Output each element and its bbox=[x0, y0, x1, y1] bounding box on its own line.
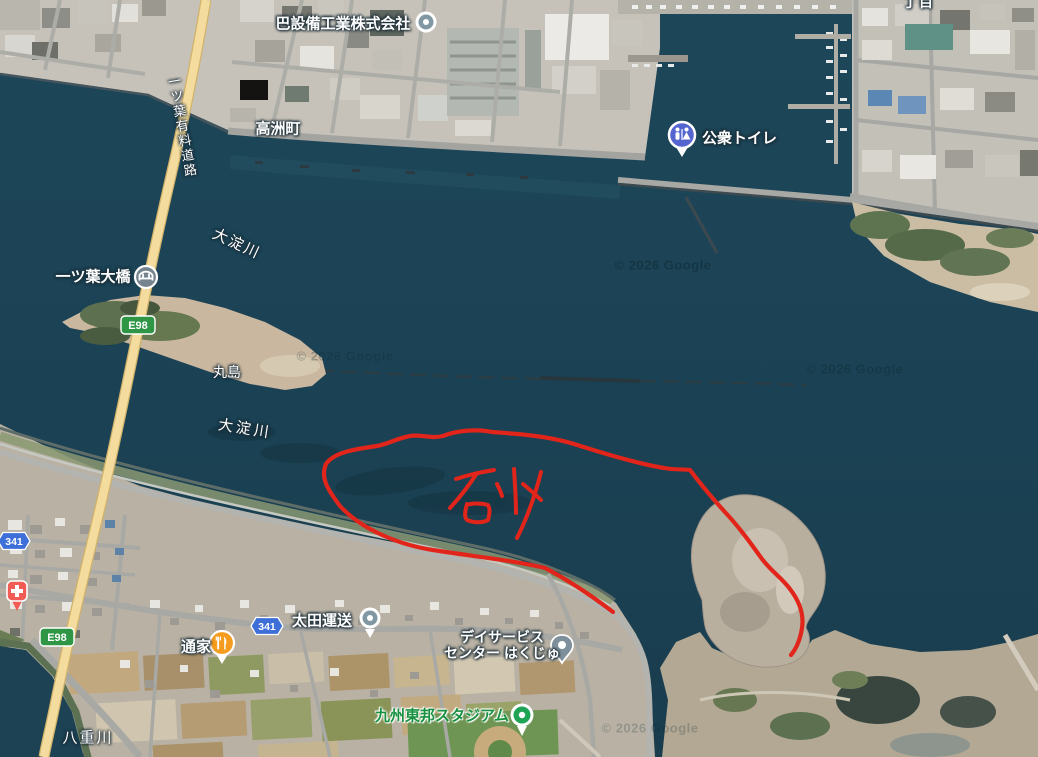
bridge-icon[interactable] bbox=[135, 266, 157, 288]
svg-text:E98: E98 bbox=[128, 320, 148, 332]
label-public-toilet[interactable]: 公衆トイレ bbox=[702, 127, 777, 148]
label-stadium[interactable]: 九州東邦スタジアム bbox=[375, 705, 509, 726]
google-attribution: © 2026 Google bbox=[615, 258, 712, 273]
label-restaurant[interactable]: 通家 bbox=[181, 636, 211, 657]
google-attribution: © 2026 Google bbox=[602, 721, 699, 736]
company-poi-pin[interactable] bbox=[416, 12, 437, 33]
label-daycare-line2: センター はくじゅ bbox=[444, 645, 560, 661]
label-bridge[interactable]: 一ツ葉大橋 bbox=[55, 266, 130, 287]
label-town[interactable]: 高洲町 bbox=[255, 118, 300, 139]
label-daycare[interactable]: デイサービス センター はくじゅ bbox=[444, 629, 560, 661]
label-transport[interactable]: 太田運送 bbox=[292, 610, 352, 631]
route-shield-e98: E98 bbox=[121, 316, 155, 334]
satellite-map-canvas[interactable]: E98 E98 341 341 巴設備工業株式会社 公衆トイレ 高洲町 一ツ葉有… bbox=[0, 0, 1038, 757]
route-shield-e98: E98 bbox=[40, 628, 74, 646]
label-island[interactable]: 丸島 bbox=[213, 362, 241, 382]
route-shield-341: 341 bbox=[251, 618, 283, 635]
label-daycare-line1: デイサービス bbox=[444, 629, 560, 645]
label-district-partial: 丁目 bbox=[903, 0, 935, 12]
google-attribution: © 2026 Google bbox=[297, 349, 394, 364]
route-shield-341: 341 bbox=[0, 533, 30, 550]
svg-text:341: 341 bbox=[5, 536, 23, 548]
label-company[interactable]: 巴設備工業株式会社 bbox=[275, 13, 410, 34]
svg-text:E98: E98 bbox=[47, 632, 67, 644]
svg-text:341: 341 bbox=[258, 621, 276, 633]
label-river-bottom: 八重川 bbox=[62, 727, 113, 748]
google-attribution: © 2026 Google bbox=[807, 362, 904, 377]
